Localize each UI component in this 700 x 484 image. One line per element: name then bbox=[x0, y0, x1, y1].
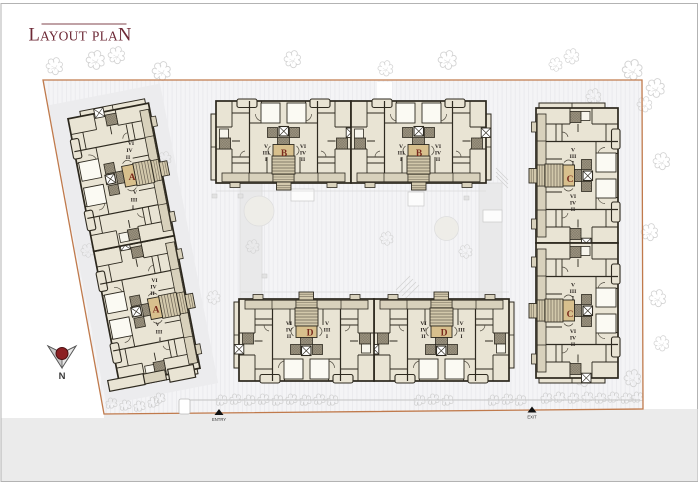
svg-text:N: N bbox=[59, 371, 66, 382]
svg-text:B: B bbox=[281, 149, 288, 159]
svg-text:VI: VI bbox=[151, 278, 158, 284]
svg-text:B: B bbox=[416, 149, 423, 159]
svg-text:VI: VI bbox=[286, 321, 293, 327]
svg-text:C: C bbox=[567, 310, 574, 320]
svg-text:LAYOUT PLAN: LAYOUT PLAN bbox=[29, 26, 132, 46]
svg-text:VI: VI bbox=[570, 329, 577, 335]
svg-text:II: II bbox=[150, 291, 155, 297]
svg-text:III: III bbox=[263, 151, 270, 157]
svg-text:A: A bbox=[129, 173, 136, 183]
svg-text:EXIT: EXIT bbox=[527, 415, 537, 420]
svg-text:III: III bbox=[398, 151, 405, 157]
svg-text:D: D bbox=[441, 329, 448, 339]
svg-text:D: D bbox=[307, 329, 314, 339]
svg-text:IV: IV bbox=[570, 201, 577, 207]
svg-text:VI: VI bbox=[420, 321, 427, 327]
svg-text:VI: VI bbox=[570, 194, 577, 200]
svg-text:VI: VI bbox=[300, 144, 307, 150]
svg-text:IV: IV bbox=[570, 336, 577, 342]
svg-text:IV: IV bbox=[286, 328, 293, 334]
svg-text:IV: IV bbox=[300, 151, 307, 157]
svg-text:III: III bbox=[570, 154, 577, 160]
svg-text:IV: IV bbox=[420, 328, 427, 334]
svg-text:IV: IV bbox=[150, 285, 157, 291]
svg-text:II: II bbox=[436, 157, 441, 163]
svg-text:III: III bbox=[156, 330, 163, 336]
svg-text:ENTRY: ENTRY bbox=[212, 417, 226, 422]
svg-text:III: III bbox=[570, 289, 577, 295]
svg-text:VI: VI bbox=[128, 141, 135, 147]
svg-text:II: II bbox=[126, 155, 131, 161]
svg-text:II: II bbox=[571, 342, 576, 348]
svg-text:IV: IV bbox=[126, 148, 133, 154]
svg-text:IV: IV bbox=[435, 151, 442, 157]
svg-text:VI: VI bbox=[435, 144, 442, 150]
svg-text:III: III bbox=[458, 328, 465, 334]
svg-text:III: III bbox=[324, 328, 331, 334]
svg-text:A: A bbox=[153, 306, 160, 316]
svg-text:C: C bbox=[567, 175, 574, 185]
svg-text:II: II bbox=[301, 157, 306, 163]
svg-text:II: II bbox=[571, 207, 576, 213]
svg-text:III: III bbox=[131, 198, 138, 204]
svg-text:II: II bbox=[287, 334, 292, 340]
svg-text:II: II bbox=[421, 334, 426, 340]
